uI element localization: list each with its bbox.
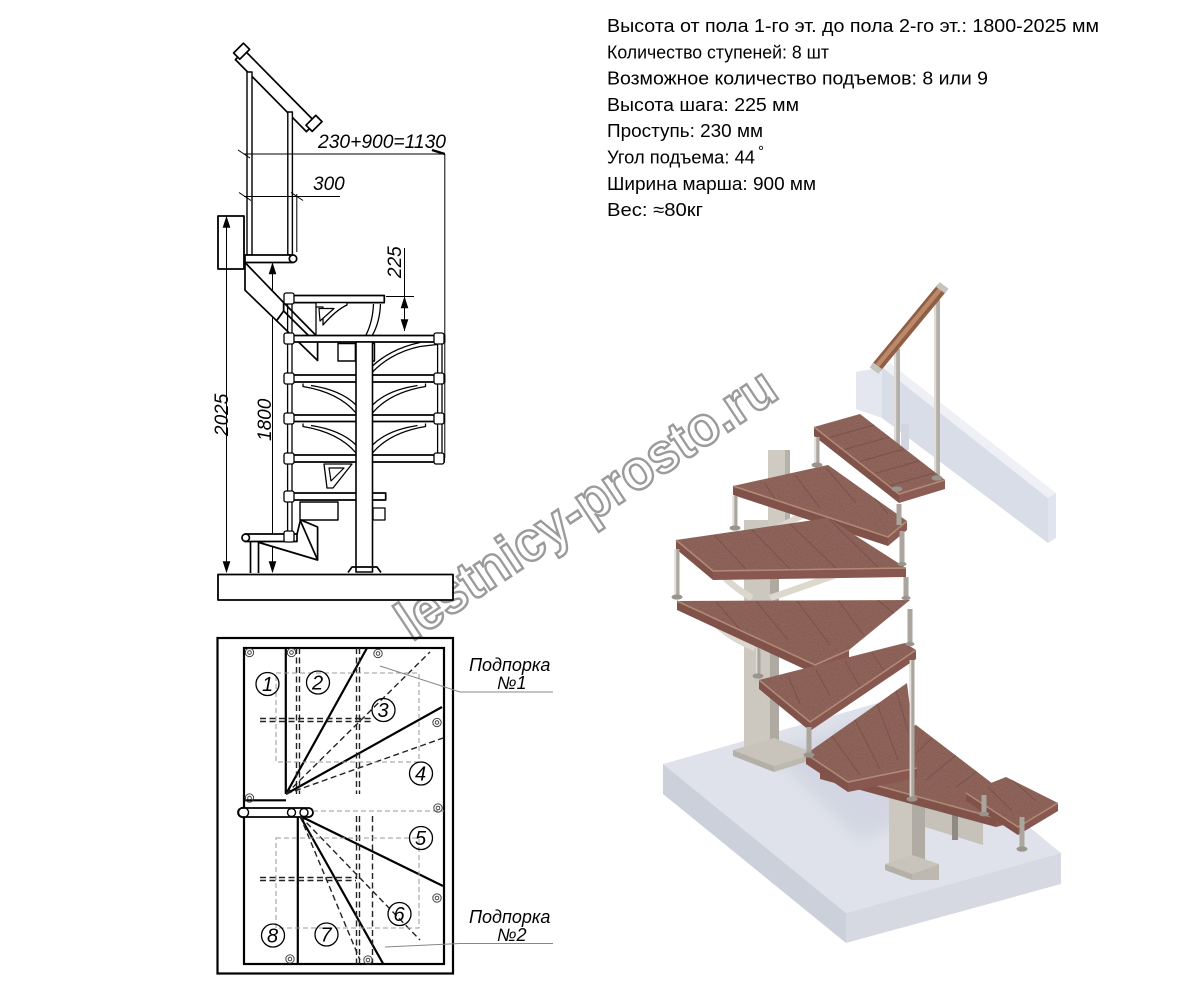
svg-text:225: 225 [385, 246, 406, 279]
svg-text:№1: №1 [497, 673, 527, 693]
svg-text:№2: №2 [497, 925, 527, 945]
svg-text:1: 1 [262, 674, 273, 696]
svg-text:8: 8 [267, 926, 278, 948]
svg-text:Количество ступеней: 8 шт: Количество ступеней: 8 шт [607, 41, 829, 62]
svg-text:Подпорка: Подпорка [469, 907, 550, 927]
svg-text:5: 5 [415, 828, 427, 850]
svg-text:Высота от пола 1-го эт. до пол: Высота от пола 1-го эт. до пола 2-го эт.… [607, 15, 1099, 36]
svg-text:°: ° [758, 143, 764, 160]
svg-text:Угол подъема: 44: Угол подъема: 44 [607, 147, 755, 168]
svg-text:300: 300 [313, 174, 345, 195]
svg-text:3: 3 [378, 700, 389, 722]
svg-text:Возможное количество подъемов:: Возможное количество подъемов: 8 или 9 [607, 68, 988, 89]
svg-text:Проступь: 230 мм: Проступь: 230 мм [607, 120, 763, 141]
svg-text:Вес: ≈80кг: Вес: ≈80кг [607, 199, 703, 220]
svg-text:Высота шага: 225 мм: Высота шага: 225 мм [607, 94, 799, 115]
svg-text:Подпорка: Подпорка [469, 655, 550, 675]
svg-text:230+900=1130: 230+900=1130 [317, 132, 446, 153]
svg-text:7: 7 [321, 925, 333, 947]
svg-text:4: 4 [415, 764, 426, 786]
svg-text:1800: 1800 [255, 398, 276, 441]
svg-text:2: 2 [311, 673, 323, 695]
svg-text:6: 6 [394, 904, 406, 926]
svg-text:Ширина марша: 900 мм: Ширина марша: 900 мм [607, 173, 816, 194]
svg-text:2025: 2025 [212, 393, 233, 437]
